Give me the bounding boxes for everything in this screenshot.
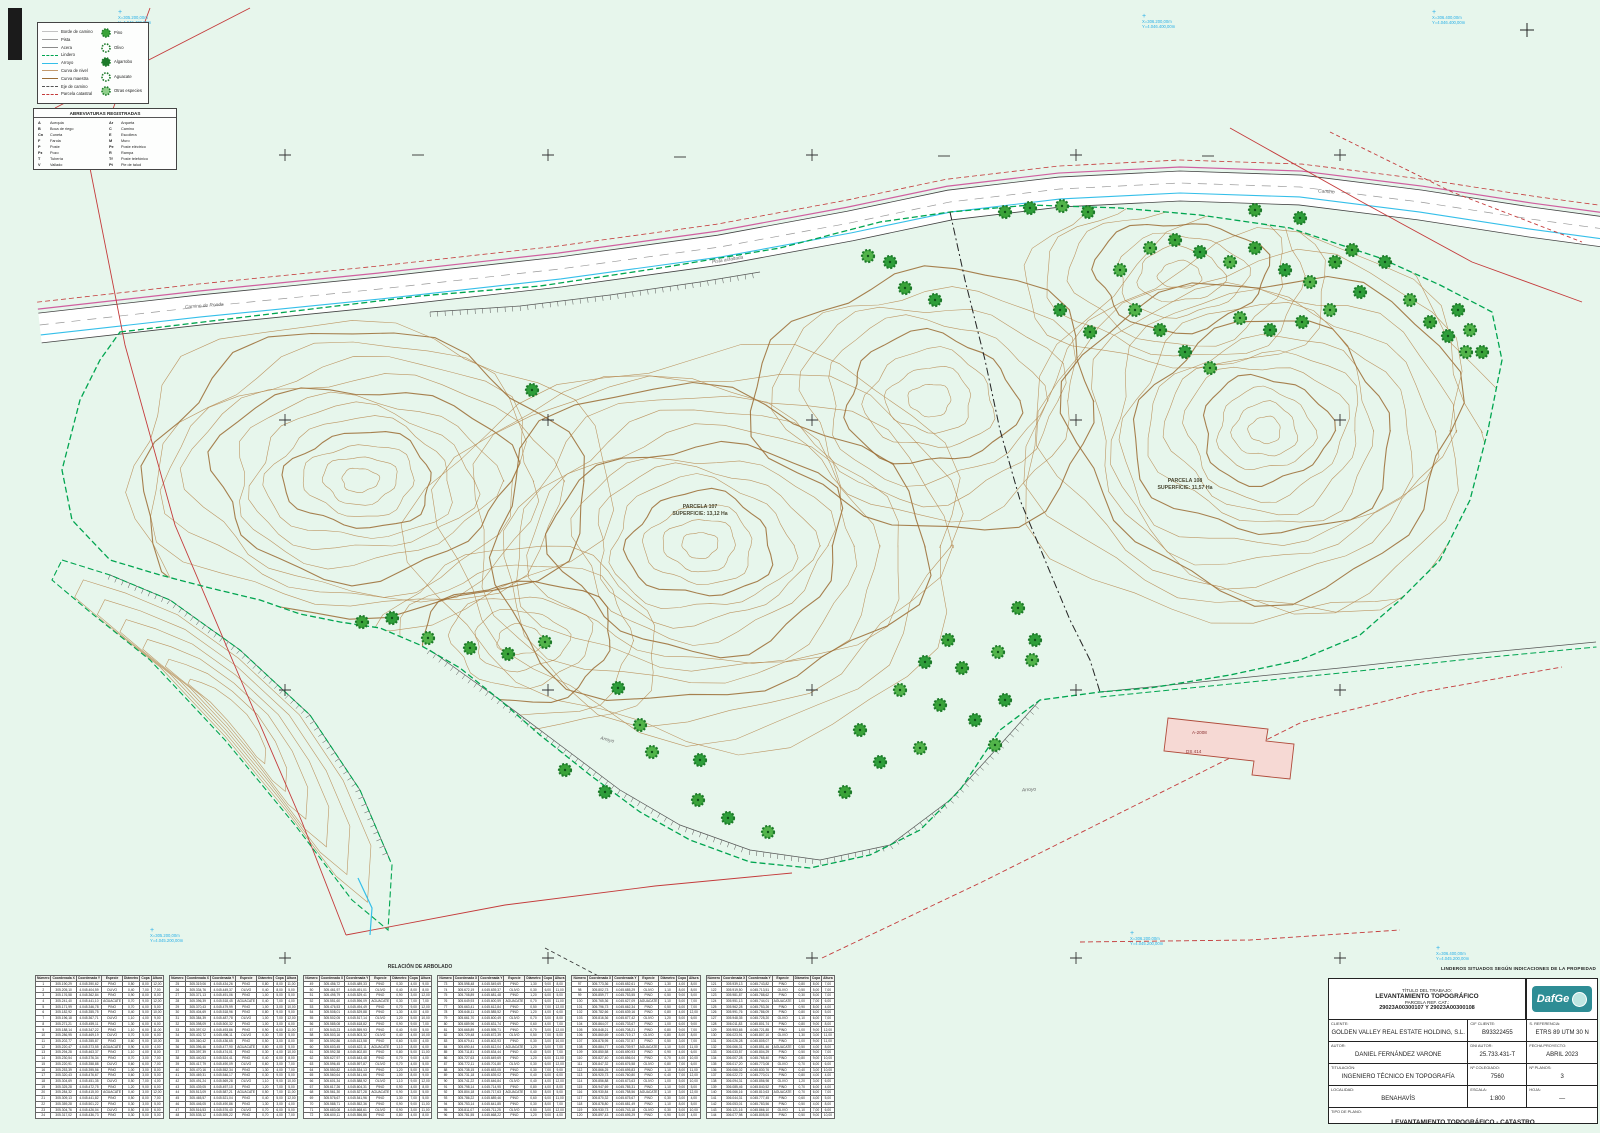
olivo-icon bbox=[100, 42, 112, 54]
tree-trunk-dot bbox=[1481, 351, 1483, 353]
tree-trunk-dot bbox=[1004, 699, 1006, 701]
hachure-tick bbox=[644, 806, 647, 810]
table-cell: 4.045.493,86 bbox=[210, 1027, 235, 1033]
title-block-field: Nº PLANOS:3 bbox=[1527, 1064, 1597, 1085]
field-value: ABRIL 2023 bbox=[1527, 1048, 1597, 1058]
table-cell: 4.045.681,48 bbox=[479, 993, 504, 999]
table-row: 144306.077,984.045.805,50PINO0,509,0010,… bbox=[706, 1113, 834, 1119]
hachure-tick bbox=[631, 798, 634, 802]
hachure-tick bbox=[738, 276, 739, 281]
table-cell: 4.045.701,80 bbox=[479, 1061, 504, 1067]
table-cell: 4.045.496,11 bbox=[210, 1033, 235, 1039]
coord-y: Y=4.046.400,00m bbox=[1142, 25, 1175, 30]
legend-line-label: Curva maestra bbox=[61, 76, 88, 81]
hachure-tick bbox=[812, 859, 813, 864]
hachure-tick bbox=[269, 680, 272, 684]
table-header: Altura bbox=[285, 976, 298, 982]
grid-coordinate-label: +X=306.400,00mY=4.046.400,00m bbox=[1432, 10, 1465, 26]
hachure-tick bbox=[708, 281, 709, 286]
hachure-tick bbox=[625, 293, 626, 298]
contour-line bbox=[799, 307, 1066, 507]
table-cell: 4.045.362,84 bbox=[76, 993, 101, 999]
hachure-tick bbox=[699, 833, 701, 838]
table-cell: 4.045.801,74 bbox=[747, 1021, 772, 1027]
work-title-ref-values: 29023A00300107 Y 29023A00300108 bbox=[1329, 1005, 1525, 1011]
table-cell: 4.045.866,10 bbox=[747, 1107, 772, 1113]
table-cell: 4.045.518,45 bbox=[210, 998, 235, 1004]
table-cell: 4.045.367,71 bbox=[76, 1016, 101, 1022]
table-cell: AGUACATE bbox=[772, 1044, 793, 1050]
table-cell: 4.045.641,85 bbox=[479, 1101, 504, 1107]
table-cell: 4.045.714,95 bbox=[479, 1084, 504, 1090]
contour-line bbox=[489, 383, 931, 701]
table-cell: 1,20 bbox=[525, 1113, 542, 1119]
hachure-tick bbox=[855, 853, 856, 858]
field-label: DNI AUTOR: bbox=[1470, 1043, 1492, 1048]
table-cell: AGUACATE bbox=[504, 1044, 525, 1050]
table-cell: 4.045.477,90 bbox=[210, 1044, 235, 1050]
tree-trunk-dot bbox=[1134, 309, 1136, 311]
table-cell: 4.045.783,56 bbox=[747, 1101, 772, 1107]
hachure-tick bbox=[678, 285, 679, 290]
table-cell: 4.045.685,29 bbox=[613, 987, 638, 993]
table-cell: 4.045.807,10 bbox=[747, 1033, 772, 1039]
tree-trunk-dot bbox=[507, 653, 509, 655]
tree-trunk-dot bbox=[934, 299, 936, 301]
hachure-tick bbox=[756, 851, 757, 856]
building-layer bbox=[1164, 718, 1294, 779]
hachure-tick bbox=[474, 683, 477, 687]
contour-line bbox=[1119, 302, 1413, 545]
tree-trunk-dot bbox=[974, 719, 976, 721]
tree-trunk-dot bbox=[1299, 217, 1301, 219]
company-logo-cell: DafGe bbox=[1526, 979, 1597, 1019]
grid-cross bbox=[806, 684, 818, 696]
tree-trunk-dot bbox=[889, 261, 891, 263]
tree-trunk-dot bbox=[639, 724, 641, 726]
table-cell: 4.045.788,62 bbox=[747, 993, 772, 999]
hachure-tick bbox=[798, 857, 799, 862]
title-block-field: DNI AUTOR:25.733.431-T bbox=[1468, 1042, 1527, 1063]
tree-table-block: NúmeroCoordenada XCoordenada YEspecieDiá… bbox=[169, 975, 298, 1119]
coord-y: Y=4.046.400,00m bbox=[1432, 21, 1465, 26]
table-row: 24305.317,024.045.436,73PINO0,305,005,00 bbox=[36, 1113, 164, 1119]
table-cell: 4,00 bbox=[688, 1113, 701, 1119]
cadastral-line bbox=[1080, 930, 1400, 942]
disclaimer-note: LINDEROS SITUADOS SEGÚN INDICACIONES DE … bbox=[1080, 966, 1596, 971]
field-label: LOCALIDAD: bbox=[1331, 1087, 1354, 1092]
hachure-tick bbox=[618, 294, 619, 299]
tree-trunk-dot bbox=[947, 639, 949, 641]
hachure-tick bbox=[603, 296, 604, 301]
table-cell: 4.045.672,39 bbox=[479, 1033, 504, 1039]
table-cell: 4.045.529,41 bbox=[345, 993, 370, 999]
hachure-tick bbox=[896, 841, 899, 845]
table-cell: 4.045.503,32 bbox=[345, 1033, 370, 1039]
table-cell: 4.045.346,78 bbox=[76, 1004, 101, 1010]
tree-table-block: NúmeroCoordenada XCoordenada YEspecieDiá… bbox=[303, 975, 432, 1119]
hachure-tick bbox=[196, 621, 199, 625]
field-label: CIF CLIENTE: bbox=[1470, 1021, 1495, 1026]
hachure-tick bbox=[685, 828, 687, 833]
grid-cross bbox=[1334, 684, 1346, 696]
title-block-row: CLIENTE:GOLDEN VALLEY REAL ESTATE HOLDIN… bbox=[1329, 1020, 1597, 1042]
field-label: Nº COLEGIADO: bbox=[1470, 1065, 1500, 1070]
grid-cross bbox=[1070, 149, 1082, 161]
hachure-tick bbox=[285, 695, 288, 699]
field-value: GOLDEN VALLEY REAL ESTATE HOLDING, S.L. bbox=[1329, 1026, 1467, 1036]
table-header: Número bbox=[170, 976, 185, 982]
table-cell: 4.045.521,04 bbox=[210, 1096, 235, 1102]
plan-type-row: TIPO DE PLANO: LEVANTAMIENTO TOPOGRÁFICO… bbox=[1329, 1108, 1597, 1133]
hachure-tick bbox=[382, 853, 387, 855]
table-cell: 7,00 bbox=[285, 1113, 298, 1119]
hachure-tick bbox=[950, 800, 954, 803]
table-cell: 4.045.529,88 bbox=[345, 1010, 370, 1016]
cadastral-line bbox=[346, 873, 792, 935]
tree-trunk-dot bbox=[1359, 291, 1361, 293]
tree-trunk-dot bbox=[1089, 331, 1091, 333]
hachure-tick bbox=[485, 692, 488, 696]
table-cell: AGUACATE bbox=[772, 998, 793, 1004]
hachure-tick bbox=[253, 665, 256, 669]
table-header: Coordenada Y bbox=[76, 976, 101, 982]
legend-tree-label: Otras especies bbox=[114, 88, 142, 93]
table-cell: AGUACATE bbox=[772, 1090, 793, 1096]
table-row: 96305.781,554.045.668,22PINO1,209,004,00 bbox=[438, 1113, 566, 1119]
tree-trunk-dot bbox=[1119, 269, 1121, 271]
east-track-boundary bbox=[1100, 647, 1596, 697]
tree-trunk-dot bbox=[1174, 239, 1176, 241]
plan-sheet: { "colors":{"bg":"#e7f6ec","contour":"#b… bbox=[0, 0, 1600, 1131]
table-header: Altura bbox=[688, 976, 701, 982]
table-header: Altura bbox=[553, 976, 566, 982]
table-header: Diámetro bbox=[793, 976, 810, 982]
hachure-tick bbox=[274, 685, 277, 689]
table-cell: 4.045.737,57 bbox=[613, 1038, 638, 1044]
table-cell: 4.045.618,82 bbox=[345, 1021, 370, 1027]
legend-line-item: Curva de nivel bbox=[42, 67, 88, 74]
contour-line bbox=[1231, 401, 1298, 456]
hachure-tick bbox=[890, 845, 893, 849]
hachure-tick bbox=[258, 670, 261, 674]
table-cell: 4.045.497,10 bbox=[210, 1084, 235, 1090]
grid-cross bbox=[806, 414, 818, 426]
tree-trunk-dot bbox=[1149, 247, 1151, 249]
hachure-tick bbox=[1020, 723, 1024, 726]
table-cell: 4.045.552,34 bbox=[210, 1067, 235, 1073]
table-cell: 4.045.552,36 bbox=[345, 1101, 370, 1107]
field-value: 1:800 bbox=[1468, 1092, 1526, 1102]
table-cell: 4.045.602,93 bbox=[479, 1038, 504, 1044]
table-cell: 4.045.753,55 bbox=[613, 993, 638, 999]
table-cell: AGUACATE bbox=[638, 998, 659, 1004]
table-header: Coordenada X bbox=[319, 976, 344, 982]
table-cell: 4.045.469,19 bbox=[76, 1033, 101, 1039]
hachure-tick bbox=[290, 700, 293, 704]
table-cell: 4.045.643,48 bbox=[345, 1056, 370, 1062]
hachure-tick bbox=[777, 854, 778, 859]
contour-line bbox=[263, 416, 453, 539]
hachure-tick bbox=[713, 838, 715, 843]
table-header: Coordenada X bbox=[587, 976, 612, 982]
table-header: Copa bbox=[140, 976, 151, 982]
table-cell: 4.045.627,09 bbox=[613, 998, 638, 1004]
table-cell: 305.897,43 bbox=[587, 1113, 612, 1119]
table-cell: 4.045.476,67 bbox=[76, 1073, 101, 1079]
hachure-tick bbox=[734, 845, 736, 850]
tree-trunk-dot bbox=[1017, 607, 1019, 609]
table-cell: 4.045.681,49 bbox=[613, 1101, 638, 1107]
hachure-tick bbox=[651, 809, 654, 813]
sheet-edge-cross bbox=[1520, 23, 1534, 37]
hachure-tick bbox=[115, 578, 117, 583]
tree-tables: NúmeroCoordenada XCoordenada YEspecieDiá… bbox=[35, 975, 815, 1121]
grid-cross bbox=[542, 684, 554, 696]
table-cell: 4.045.744,01 bbox=[747, 998, 772, 1004]
table-cell: 10,00 bbox=[822, 1113, 835, 1119]
table-cell: AGUACATE bbox=[236, 1090, 257, 1096]
table-cell: 4.045.639,16 bbox=[613, 1010, 638, 1016]
hachure-tick bbox=[624, 794, 627, 798]
title-block-field: CLIENTE:GOLDEN VALLEY REAL ESTATE HOLDIN… bbox=[1329, 1020, 1468, 1041]
legend-line-label: Arroyo bbox=[61, 60, 73, 65]
hachure-tick bbox=[155, 594, 157, 599]
table-header: Altura bbox=[419, 976, 432, 982]
tree-trunk-dot bbox=[1159, 329, 1161, 331]
abbreviation-item: PtPie de talud bbox=[109, 162, 172, 168]
grid-cross bbox=[279, 149, 291, 161]
field-label: TITULACIÓN: bbox=[1331, 1065, 1355, 1070]
hachure-tick bbox=[202, 625, 205, 629]
table-cell: 10,00 bbox=[285, 1004, 298, 1010]
field-label: HOJA: bbox=[1529, 1087, 1540, 1092]
hachure-tick bbox=[450, 667, 453, 671]
contour-line bbox=[120, 620, 329, 847]
cadastral-line bbox=[88, 158, 346, 935]
table-cell: 4.045.487,78 bbox=[210, 1016, 235, 1022]
table-cell: 4.045.856,98 bbox=[747, 1078, 772, 1084]
table-cell: 4.045.472,75 bbox=[76, 1084, 101, 1090]
table-cell: 0,70 bbox=[257, 1113, 274, 1119]
table-header: Número bbox=[706, 976, 721, 982]
hachure-tick bbox=[367, 818, 372, 820]
table-cell: 4.045.639,37 bbox=[479, 987, 504, 993]
hachure-tick bbox=[569, 754, 572, 758]
table-header: Diámetro bbox=[525, 976, 542, 982]
hachure-tick bbox=[820, 860, 821, 865]
hachure-tick bbox=[587, 768, 590, 772]
table-cell: 4.045.426,04 bbox=[76, 1107, 101, 1113]
hachure-tick bbox=[700, 282, 701, 287]
tree-trunk-dot bbox=[1184, 351, 1186, 353]
tree-trunk-dot bbox=[617, 687, 619, 689]
legend-tree-label: Olivo bbox=[114, 45, 124, 50]
work-title-main: LEVANTAMIENTO TOPOGRÁFICO bbox=[1329, 993, 1525, 1000]
hachure-tick bbox=[633, 292, 634, 297]
tree-trunk-dot bbox=[904, 287, 906, 289]
plan-type-label: TIPO DE PLANO: bbox=[1331, 1109, 1362, 1114]
table-cell: 4.045.501,22 bbox=[76, 1101, 101, 1107]
table-cell: 4.045.576,40 bbox=[210, 1107, 235, 1113]
field-label: S. REFERENCIA: bbox=[1529, 1021, 1560, 1026]
hachure-tick bbox=[141, 589, 143, 594]
tree-trunk-dot bbox=[391, 617, 393, 619]
table-cell: 4.045.587,21 bbox=[210, 1090, 235, 1096]
tree-trunk-dot bbox=[1465, 351, 1467, 353]
contour-line bbox=[1148, 335, 1374, 523]
field-value: INGENIERO TÉCNICO EN TOPOGRAFÍA bbox=[1329, 1070, 1467, 1080]
building-label: A-2008 bbox=[1192, 730, 1207, 735]
table-cell: 4.045.436,73 bbox=[76, 1113, 101, 1119]
table-cell: 4.045.634,44 bbox=[479, 1050, 504, 1056]
table-header: Altura bbox=[822, 976, 835, 982]
table-cell: 24 bbox=[36, 1113, 51, 1119]
hachure-tick bbox=[1025, 717, 1029, 720]
table-header: Coordenada Y bbox=[345, 976, 370, 982]
parcel-area: SUPERFICIE: 13,12 Ha bbox=[640, 511, 760, 518]
table-cell: 4.045.631,74 bbox=[479, 1021, 504, 1027]
tree-trunk-dot bbox=[1301, 321, 1303, 323]
hachure-tick bbox=[190, 617, 193, 621]
grid-coordinate-label: +X=306.400,00mY=4.045.200,00m bbox=[1436, 946, 1469, 962]
table-cell: 96 bbox=[438, 1113, 453, 1119]
table-cell: 4.045.743,82 bbox=[747, 981, 772, 987]
tree-trunk-dot bbox=[924, 661, 926, 663]
hachure-tick bbox=[1015, 728, 1019, 731]
contour-line bbox=[373, 546, 655, 729]
table-cell: 4.045.717,63 bbox=[479, 1090, 504, 1096]
hachure-tick bbox=[648, 290, 649, 295]
field-value: DANIEL FERNÁNDEZ VARONE bbox=[1329, 1048, 1467, 1058]
title-block-header-row: TÍTULO DEL TRABAJO: LEVANTAMIENTO TOPOGR… bbox=[1329, 979, 1597, 1020]
table-cell: 4.045.612,84 bbox=[479, 1004, 504, 1010]
table-cell: PINO bbox=[638, 1113, 659, 1119]
legend-tree-item: Otras especies bbox=[100, 85, 142, 97]
table-cell: 0,90 bbox=[659, 1113, 676, 1119]
tail-parcel-boundary bbox=[52, 560, 392, 930]
table-row: 72305.600,114.045.556,86PINO0,804,008,00 bbox=[304, 1113, 432, 1119]
hachure-tick bbox=[355, 790, 360, 792]
legend-line-item: Arroyo bbox=[42, 59, 73, 66]
hachure-tick bbox=[588, 298, 589, 303]
table-cell: 4.045.600,59 bbox=[479, 998, 504, 1004]
tree-trunk-dot bbox=[699, 759, 701, 761]
hachure-tick bbox=[581, 763, 584, 767]
building-label: DS 414 bbox=[1186, 749, 1201, 754]
tree-trunk-dot bbox=[1061, 205, 1063, 207]
table-cell: 4.045.541,96 bbox=[345, 1096, 370, 1102]
hachure-tick bbox=[208, 629, 211, 633]
table-cell: 12,00 bbox=[419, 1004, 432, 1010]
table-cell: 4.045.613,58 bbox=[345, 1038, 370, 1044]
table-header: Copa bbox=[274, 976, 285, 982]
tree-trunk-dot bbox=[899, 689, 901, 691]
tree-trunk-dot bbox=[1199, 251, 1201, 253]
title-block-row: AUTOR:DANIEL FERNÁNDEZ VARONEDNI AUTOR:2… bbox=[1329, 1042, 1597, 1064]
field-label: CLIENTE: bbox=[1331, 1021, 1349, 1026]
contour-line bbox=[151, 342, 565, 606]
legend-line-label: Pista bbox=[61, 37, 70, 42]
field-value: BENAHAVÍS bbox=[1329, 1092, 1467, 1102]
table-cell: 4.045.500,32 bbox=[210, 1021, 235, 1027]
parcel-name: PARCELA 107 bbox=[640, 504, 760, 511]
hachure-tick bbox=[869, 850, 870, 855]
field-value: 25.733.431-T bbox=[1468, 1048, 1526, 1058]
tree-trunk-dot bbox=[767, 831, 769, 833]
hachure-tick bbox=[715, 280, 716, 285]
table-cell: 48 bbox=[170, 1113, 185, 1119]
tree-trunk-dot bbox=[1409, 299, 1411, 301]
hachure-tick bbox=[932, 814, 935, 818]
hachure-tick bbox=[167, 600, 170, 604]
contour-line bbox=[303, 445, 414, 517]
grid-cross bbox=[1334, 149, 1346, 161]
table-cell: 120 bbox=[572, 1113, 587, 1119]
hachure-tick bbox=[558, 301, 559, 306]
field-label: ESCALA: bbox=[1470, 1087, 1486, 1092]
tree-trunk-dot bbox=[1429, 321, 1431, 323]
tree-trunk-dot bbox=[961, 667, 963, 669]
table-cell: 4,00 bbox=[274, 1113, 285, 1119]
hachure-tick bbox=[1035, 706, 1039, 709]
hachure-tick bbox=[468, 679, 471, 683]
tree-trunk-dot bbox=[867, 255, 869, 257]
contour-line bbox=[97, 600, 350, 875]
table-cell: 4.045.805,50 bbox=[747, 1113, 772, 1119]
table-cell: 4.045.695,83 bbox=[613, 1067, 638, 1073]
table-cell: 4.045.395,56 bbox=[76, 1067, 101, 1073]
hachure-tick bbox=[135, 586, 137, 591]
contour-line bbox=[503, 396, 899, 683]
table-cell: 4.045.441,10 bbox=[76, 998, 101, 1004]
table-cell: 4.045.595,22 bbox=[210, 1113, 235, 1119]
table-header: Coordenada X bbox=[185, 976, 210, 982]
table-cell: AGUACATE bbox=[370, 1044, 391, 1050]
hachure-tick bbox=[970, 778, 974, 781]
table-cell: 4.045.840,52 bbox=[747, 1084, 772, 1090]
scan-corner-mark bbox=[8, 8, 22, 60]
table-cell: AGUACATE bbox=[370, 998, 391, 1004]
table-cell: 4.045.725,20 bbox=[747, 1016, 772, 1022]
tree-trunk-dot bbox=[1229, 261, 1231, 263]
table-cell: 305.535,12 bbox=[185, 1113, 210, 1119]
table-cell: 4.045.585,52 bbox=[479, 1010, 504, 1016]
table-cell: AGUACATE bbox=[638, 1090, 659, 1096]
table-cell: 4.045.415,00 bbox=[76, 1090, 101, 1096]
tree-trunk-dot bbox=[1447, 335, 1449, 337]
hachure-tick bbox=[310, 721, 314, 724]
tree-trunk-dot bbox=[1457, 309, 1459, 311]
table-cell: 305.600,11 bbox=[319, 1113, 344, 1119]
hachure-tick bbox=[593, 772, 596, 776]
hachure-tick bbox=[185, 613, 188, 617]
table-cell: 4.045.404,59 bbox=[76, 987, 101, 993]
table-cell: 4,00 bbox=[408, 1113, 419, 1119]
contour-line bbox=[75, 580, 371, 902]
hachure-tick bbox=[671, 821, 674, 825]
title-block-field: S. REFERENCIA:ETRS 89 UTM 30 N bbox=[1527, 1020, 1597, 1041]
hachure-tick bbox=[128, 583, 130, 588]
hachure-tick bbox=[358, 797, 363, 799]
table-cell: 0,50 bbox=[793, 1113, 810, 1119]
legend-line-item: Parcela catastral bbox=[42, 90, 92, 97]
legend-line-sample bbox=[42, 31, 58, 32]
tree-trunk-dot bbox=[1351, 249, 1353, 251]
table-cell: 4.045.622,11 bbox=[345, 1044, 370, 1050]
field-value: 3 bbox=[1527, 1070, 1597, 1080]
title-block-row: LOCALIDAD:BENAHAVÍSESCALA:1:800HOJA:— bbox=[1329, 1086, 1597, 1108]
